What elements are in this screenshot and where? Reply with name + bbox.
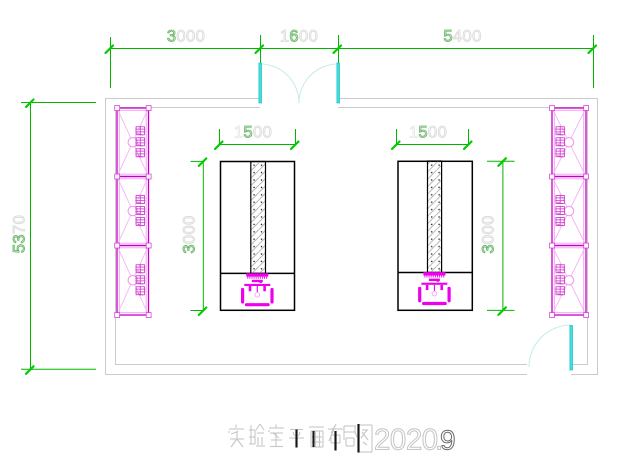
svg-text:3000: 3000 [181, 215, 199, 253]
svg-text:1500: 1500 [234, 124, 272, 142]
svg-text:1500: 1500 [409, 124, 447, 142]
svg-text:3000: 3000 [167, 28, 205, 46]
svg-text:3000: 3000 [480, 215, 498, 253]
svg-text:5370: 5370 [11, 215, 29, 253]
svg-text:2020: 2020 [374, 424, 438, 457]
svg-text:5400: 5400 [443, 28, 481, 46]
svg-text:1600: 1600 [280, 28, 318, 46]
svg-text:9: 9 [440, 425, 456, 456]
